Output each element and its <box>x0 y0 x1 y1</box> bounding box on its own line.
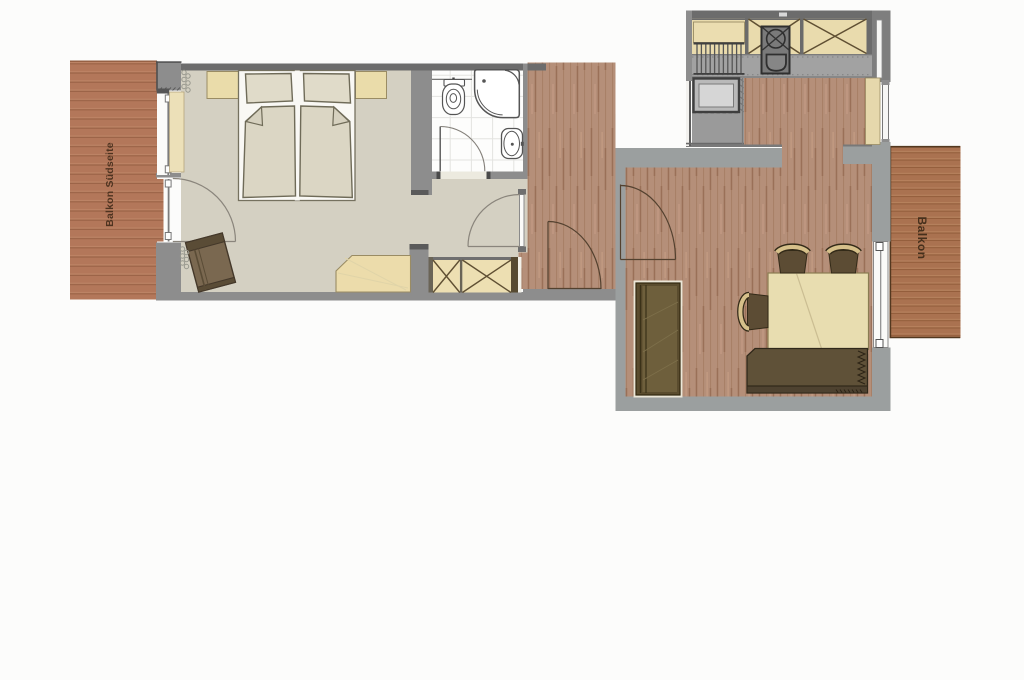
svg-text:Balkon: Balkon <box>915 216 929 259</box>
svg-text:Balkon Südseite: Balkon Südseite <box>104 142 116 227</box>
